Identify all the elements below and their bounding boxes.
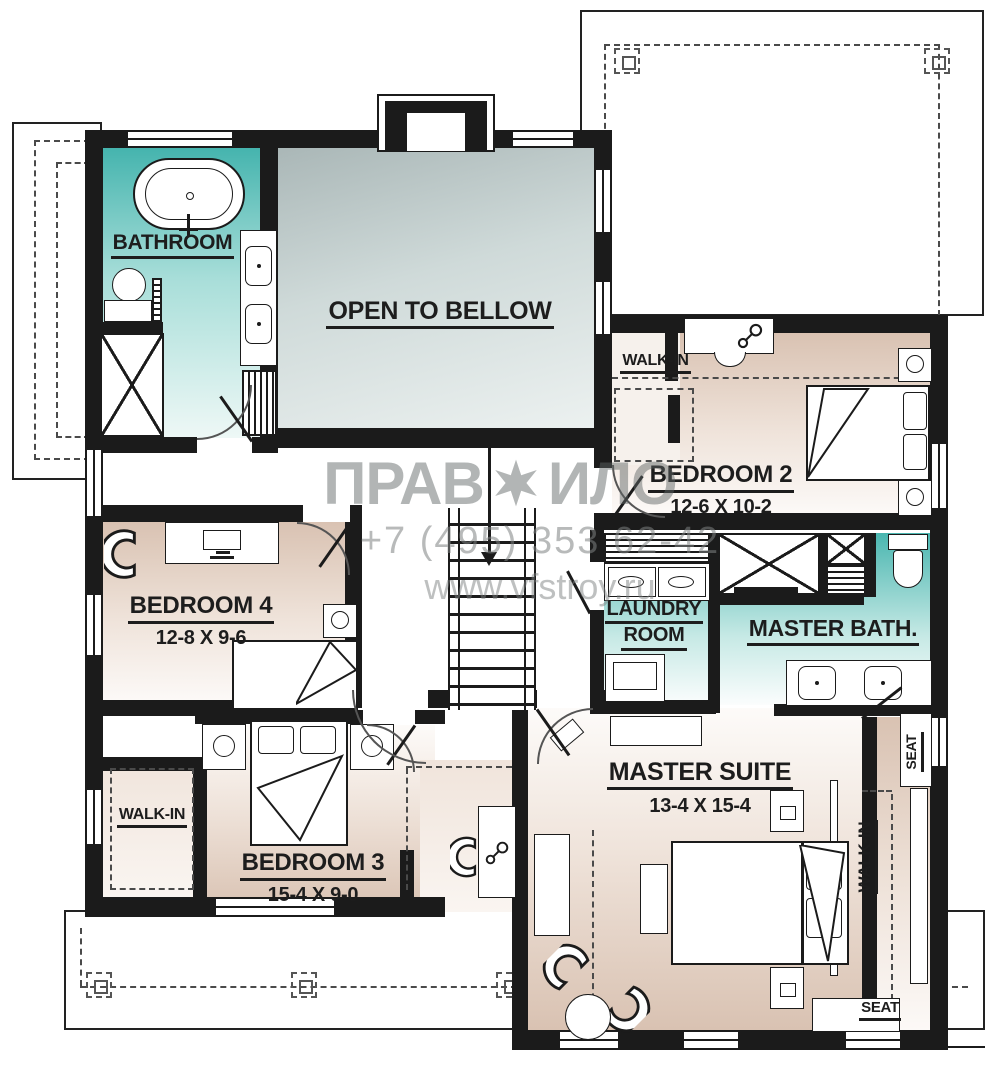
wall (193, 757, 207, 905)
window (596, 170, 610, 232)
monitor-stand (210, 556, 234, 559)
sink-drain (257, 322, 261, 326)
bathtub-drain (186, 192, 194, 200)
shelves-icon (826, 565, 866, 595)
window (684, 1032, 738, 1048)
stair-arrow-icon (481, 552, 497, 566)
wall (350, 505, 362, 522)
nightstand-drawer (780, 983, 796, 997)
closet-rod-dashed (614, 388, 694, 462)
wall (612, 315, 948, 333)
bed-blanket-fold (252, 752, 346, 844)
label-seat-lower: SEAT (848, 1000, 912, 1021)
window (87, 790, 101, 844)
door-leaf (566, 570, 591, 614)
room-label-bedroom3: BEDROOM 3 15-4 X 9-0 (228, 850, 398, 908)
monitor-icon (203, 530, 241, 550)
monitor-stand (216, 551, 230, 554)
window (596, 282, 610, 334)
sink-drain (257, 264, 261, 268)
side-table-icon (565, 994, 611, 1040)
washer-door (618, 576, 644, 588)
wall (85, 437, 197, 453)
closet-shelf (734, 587, 798, 596)
toilet-tank (104, 300, 152, 322)
nightstand-lamp (906, 355, 924, 373)
room-label-bathroom: BATHROOM (100, 231, 245, 259)
toilet-icon (893, 550, 923, 588)
pillow-icon (903, 434, 927, 470)
room-label-walk-in-bedroom2: WALK-IN (608, 352, 703, 374)
room-label-laundry: LAUNDRY ROOM (598, 598, 710, 651)
wall (278, 428, 612, 448)
dryer-door (668, 576, 694, 588)
ceiling-break-line (406, 768, 408, 890)
nightstand-lamp (213, 735, 235, 757)
wall (252, 437, 278, 453)
closet-rod-dashed (891, 794, 893, 1030)
wall (930, 315, 948, 1050)
closet-icon (826, 533, 866, 565)
ceiling-break-line (406, 766, 512, 768)
bed-blanket-fold (296, 642, 358, 708)
label-seat-upper: SEAT (904, 725, 920, 779)
sink-drain (815, 681, 819, 685)
bed-blanket-fold (758, 845, 846, 963)
chair-icon (104, 526, 160, 582)
closet-shelf-icon (910, 788, 928, 984)
sink-drain (881, 681, 885, 685)
toilet-icon (112, 268, 146, 302)
room-label-bedroom2: BEDROOM 2 12-6 X 10-2 (636, 462, 806, 520)
dresser-icon (610, 716, 702, 746)
porch-bottom-dashed-line (80, 928, 82, 986)
wall (718, 595, 864, 605)
room-open-to-below (278, 148, 594, 428)
closet-rod-dashed (862, 790, 892, 792)
wall (594, 513, 612, 530)
desk-lamp-icon (736, 322, 764, 350)
window (932, 718, 946, 766)
window (932, 444, 946, 508)
shower-icon (100, 333, 164, 437)
room-label-walk-in-master: WALK-IN (855, 802, 877, 912)
pillow-icon (258, 726, 294, 754)
room-label-open-to-below: OPEN TO BELLOW (325, 297, 555, 329)
porch-post-icon (924, 48, 950, 74)
window (87, 450, 101, 516)
chair-icon (450, 834, 496, 880)
ceiling-break-line (612, 377, 930, 379)
laundry-counter-icon (604, 533, 710, 563)
porch-top-right-dashed-outline (604, 44, 940, 316)
nightstand-lamp (906, 488, 924, 506)
window (128, 132, 232, 146)
window (846, 1032, 900, 1048)
wall (428, 690, 447, 708)
window (87, 595, 101, 655)
window (513, 132, 573, 146)
towel-bar-icon (152, 278, 162, 322)
toilet-tank (888, 534, 928, 550)
pillow-icon (903, 392, 927, 430)
stair-direction-line (488, 446, 491, 556)
porch-post-icon (86, 972, 112, 998)
pillow-icon (300, 726, 336, 754)
wall (590, 530, 604, 562)
room-label-master-suite: MASTER SUITE 13-4 X 15-4 (592, 758, 808, 818)
dresser-icon (534, 834, 570, 936)
porch-post-icon (614, 48, 640, 74)
bench-icon (640, 864, 668, 934)
wall (85, 505, 303, 522)
laundry-sink-basin (613, 662, 657, 690)
wall (590, 700, 716, 714)
linen-closet-icon (718, 533, 820, 595)
nightstand-lamp (331, 611, 349, 629)
watermark-emblem-icon (490, 457, 542, 509)
porch-post-icon (291, 972, 317, 998)
room-label-walk-in-bedroom3: WALK-IN (106, 806, 198, 828)
room-label-master-bath: MASTER BATH. (735, 616, 931, 646)
room-label-bedroom4: BEDROOM 4 12-8 X 9-6 (116, 593, 286, 651)
staircase (448, 508, 536, 710)
floor-plan: BATHROOM OPEN TO BELLOW WALK-IN BEDROOM … (0, 0, 1000, 1065)
closet-rod-dashed (110, 768, 194, 890)
chimney-flue (407, 113, 465, 151)
